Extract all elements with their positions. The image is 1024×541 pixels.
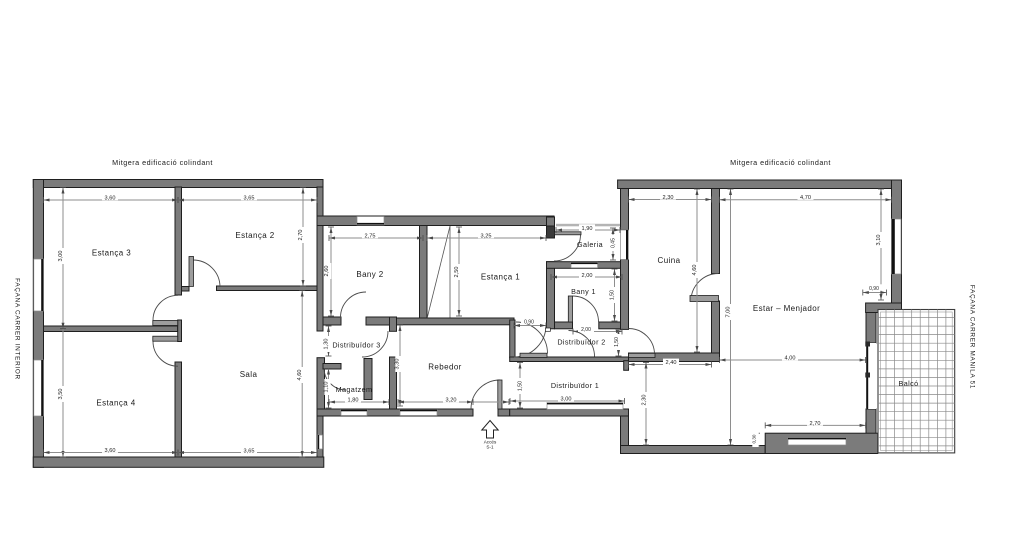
svg-text:4,60: 4,60 — [692, 265, 698, 276]
svg-text:2,70: 2,70 — [298, 230, 304, 241]
svg-text:2,00: 2,00 — [582, 273, 593, 279]
svg-text:Estança 4: Estança 4 — [96, 399, 135, 408]
svg-text:4,70: 4,70 — [800, 195, 811, 201]
svg-text:3,50: 3,50 — [58, 389, 64, 400]
svg-text:2,70: 2,70 — [810, 421, 821, 427]
svg-text:Rebedor: Rebedor — [428, 363, 462, 372]
svg-text:2,40: 2,40 — [666, 360, 677, 366]
svg-text:Distribuïdor 1: Distribuïdor 1 — [551, 381, 599, 390]
svg-text:1,10: 1,10 — [324, 382, 330, 393]
svg-text:3,65: 3,65 — [244, 195, 255, 201]
svg-text:3,10: 3,10 — [876, 235, 882, 246]
svg-text:Estança 3: Estança 3 — [92, 249, 131, 258]
svg-text:Magatzem: Magatzem — [336, 385, 373, 394]
svg-text:Sala: Sala — [240, 370, 258, 379]
svg-text:1,90: 1,90 — [582, 226, 593, 232]
svg-text:1,50: 1,50 — [518, 381, 524, 391]
svg-text:Bany 2: Bany 2 — [356, 270, 383, 279]
svg-text:Balcó: Balcó — [899, 379, 919, 388]
svg-text:2,75: 2,75 — [365, 233, 376, 239]
svg-text:0,90: 0,90 — [524, 319, 534, 325]
svg-text:Estar – Menjador: Estar – Menjador — [753, 304, 820, 313]
svg-text:0,90: 0,90 — [869, 286, 879, 292]
svg-text:Mitgera edificació colindant: Mitgera edificació colindant — [112, 158, 213, 167]
svg-text:FAÇANA CARRER MANILA 51: FAÇANA CARRER MANILA 51 — [969, 285, 976, 389]
svg-text:3,65: 3,65 — [244, 449, 255, 455]
svg-text:2,30: 2,30 — [663, 195, 674, 201]
svg-text:0,30: 0,30 — [752, 434, 757, 443]
svg-text:FAÇANA CARRER INTERIOR: FAÇANA CARRER INTERIOR — [14, 278, 21, 380]
svg-text:2,00: 2,00 — [581, 327, 591, 333]
svg-text:3,25: 3,25 — [481, 233, 492, 239]
svg-text:1,30: 1,30 — [324, 339, 330, 350]
svg-text:2,30: 2,30 — [642, 395, 648, 406]
svg-text:Estança 1: Estança 1 — [481, 273, 520, 282]
svg-text:Mitgera edificació colindant: Mitgera edificació colindant — [730, 158, 831, 167]
svg-text:Bany 1: Bany 1 — [571, 287, 596, 296]
svg-text:3,20: 3,20 — [446, 398, 457, 404]
svg-text:Cuina: Cuina — [658, 256, 681, 265]
svg-text:1,80: 1,80 — [348, 398, 359, 404]
svg-text:1,50: 1,50 — [614, 337, 620, 347]
svg-text:Distribuïdor 3: Distribuïdor 3 — [332, 341, 380, 350]
svg-text:7,00: 7,00 — [725, 307, 731, 318]
svg-text:3,00: 3,00 — [58, 251, 64, 262]
svg-text:2,50: 2,50 — [454, 267, 460, 278]
svg-text:Galeria: Galeria — [577, 240, 603, 249]
svg-text:Distribuïdor 2: Distribuïdor 2 — [557, 338, 605, 347]
svg-text:Estança 2: Estança 2 — [235, 231, 274, 240]
svg-text:1,50: 1,50 — [609, 290, 615, 300]
svg-text:3,60: 3,60 — [105, 195, 116, 201]
svg-text:0,45: 0,45 — [611, 238, 617, 248]
svg-text:4,60: 4,60 — [297, 370, 303, 381]
svg-text:3,30: 3,30 — [395, 359, 401, 370]
svg-text:2,60: 2,60 — [324, 266, 330, 277]
svg-text:4,00: 4,00 — [785, 356, 796, 362]
svg-text:3,00: 3,00 — [561, 397, 572, 403]
svg-text:S-1: S-1 — [486, 445, 494, 450]
svg-text:3,60: 3,60 — [105, 448, 116, 454]
